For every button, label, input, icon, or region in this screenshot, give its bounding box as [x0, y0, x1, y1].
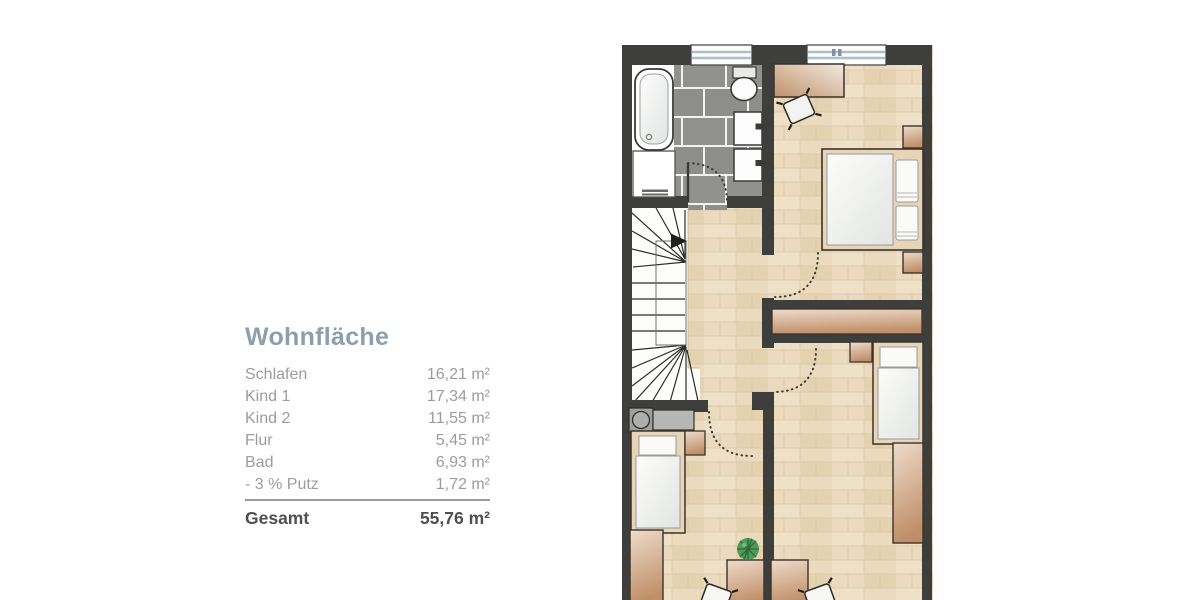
- desk: [771, 560, 808, 600]
- page: Wohnfläche Schlafen 16,21 m² Kind 1 17,3…: [0, 0, 1200, 600]
- single-bed: [873, 342, 923, 444]
- washbasin: [734, 112, 766, 145]
- legend-row: - 3 % Putz 1,72 m²: [245, 474, 490, 496]
- room-label: Kind 2: [245, 408, 290, 430]
- wall-bath-bedroom: [762, 63, 774, 255]
- room-area: 5,45 m²: [436, 430, 490, 452]
- floor-plan: [0, 0, 1200, 600]
- legend-row: Flur 5,45 m²: [245, 430, 490, 452]
- double-bed: [822, 149, 923, 250]
- wall-bath-bottom-right: [727, 196, 764, 208]
- wardrobe: [630, 530, 663, 600]
- room-area: 1,72 m²: [436, 474, 490, 496]
- bath-doorway-floor: [688, 196, 727, 210]
- window-bedroom: [807, 45, 886, 65]
- single-bed: [631, 431, 685, 533]
- nightstand: [903, 126, 923, 148]
- legend-row: Kind 2 11,55 m²: [245, 408, 490, 430]
- wall-closet-top: [772, 300, 922, 309]
- nightstand: [850, 342, 872, 362]
- room-label: Bad: [245, 452, 273, 474]
- bathtub: [635, 69, 673, 150]
- built-in-wardrobe: [772, 309, 922, 334]
- desk: [774, 64, 844, 97]
- wall-bath-bottom-left: [622, 196, 688, 208]
- room-label: Flur: [245, 430, 273, 452]
- legend-row: Schlafen 16,21 m²: [245, 364, 490, 386]
- legend-divider: [245, 499, 490, 501]
- room-area: 17,34 m²: [427, 386, 490, 408]
- room-label: Kind 1: [245, 386, 290, 408]
- nightstand: [903, 252, 923, 273]
- room-area: 11,55 m²: [428, 408, 490, 430]
- plant: [737, 538, 759, 560]
- area-legend: Wohnfläche Schlafen 16,21 m² Kind 1 17,3…: [245, 323, 490, 529]
- legend-row: Kind 1 17,34 m²: [245, 386, 490, 408]
- wardrobe: [893, 443, 923, 543]
- room-area: 6,93 m²: [436, 452, 490, 474]
- bath-mat: [642, 190, 668, 193]
- desk: [727, 560, 764, 600]
- window-bath: [691, 45, 752, 65]
- toilet: [731, 67, 757, 101]
- washbasin: [734, 149, 766, 181]
- total-label: Gesamt: [245, 508, 309, 529]
- legend-title: Wohnfläche: [245, 323, 490, 351]
- bath-mat: [642, 194, 668, 196]
- room-label: - 3 % Putz: [245, 474, 319, 496]
- nightstand: [685, 431, 705, 455]
- dresser: [629, 408, 694, 432]
- legend-total: Gesamt 55,76 m²: [245, 508, 490, 529]
- room-label: Schlafen: [245, 364, 307, 386]
- wall-center-cap: [752, 392, 774, 410]
- legend-rows: Schlafen 16,21 m² Kind 1 17,34 m² Kind 2…: [245, 364, 490, 496]
- room-area: 16,21 m²: [427, 364, 490, 386]
- total-value: 55,76 m²: [420, 508, 490, 529]
- legend-row: Bad 6,93 m²: [245, 452, 490, 474]
